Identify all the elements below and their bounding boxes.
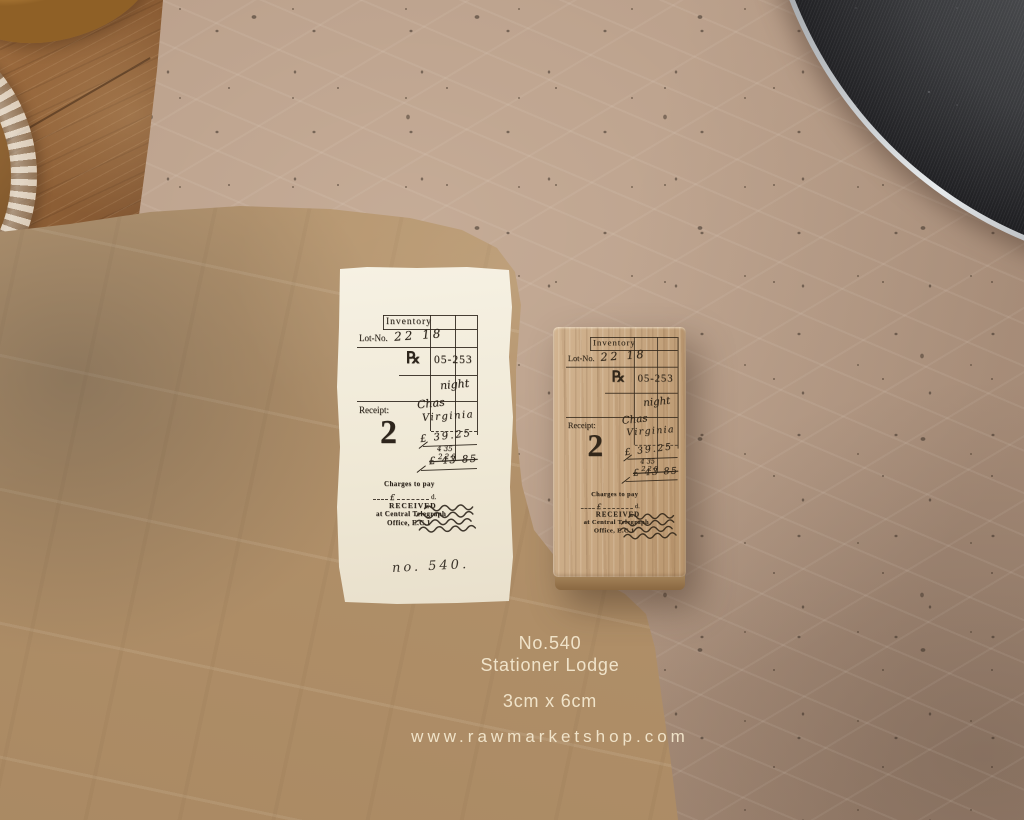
lot-no-label: Lot-No.: [568, 355, 595, 363]
rx-symbol: ℞: [406, 350, 420, 366]
inventory-label: Inventory: [593, 340, 636, 349]
stamped-receipt-paper: Inventory Lot-No. 22 18 ℞ 05-253 night R…: [337, 267, 513, 604]
code-value: 05-253: [434, 355, 473, 367]
sum-line-1: £ 39.25: [624, 443, 673, 458]
grid-line-row3: [605, 393, 678, 394]
telegraph-receipt-stamp-design: Inventory Lot-No. 22 18 ℞ 05-253 night R…: [357, 315, 507, 537]
charges-label: Charges to pay: [591, 491, 638, 498]
caption-spacer: [411, 676, 689, 690]
sum-total: £ 43 85: [429, 455, 478, 468]
charges-pence: d.: [431, 494, 436, 501]
inventory-label: Inventory: [386, 318, 432, 328]
lot-no-value: 22 18: [394, 327, 444, 342]
charges-dash-1: [373, 499, 388, 500]
handwritten-product-number: no. 540.: [392, 557, 470, 576]
rx-symbol: ℞: [612, 370, 625, 385]
sum-line-1: £ 39.25: [420, 429, 473, 445]
big-number: 2: [380, 416, 397, 450]
grid-line-inventory-left: [383, 315, 384, 330]
lot-no-label: Lot-No.: [359, 334, 388, 343]
product-photo-scene: Inventory Lot-No. 22 18 ℞ 05-253 night R…: [0, 0, 1024, 820]
sum-line-2: 4 35: [437, 446, 453, 453]
charges-label: Charges to pay: [384, 481, 435, 488]
charges-dash-1: [581, 508, 595, 509]
stamp-block-top-face: Inventory Lot-No. 22 18 ℞ 05-253 night R…: [553, 327, 686, 577]
product-caption: No.540 Stationer Lodge 3cm x 6cm www.raw…: [411, 632, 689, 748]
receipt-script-line2: Virginia: [626, 426, 675, 439]
wave-cancellation-lines: [412, 503, 477, 535]
sum-rule-2: [626, 479, 678, 482]
charges-dash-2: [603, 508, 633, 509]
code-value: 05-253: [638, 374, 674, 385]
grid-line-row3: [399, 375, 477, 376]
sum-rule-2: [421, 468, 477, 471]
sum-total: £ 43 85: [633, 467, 679, 479]
lot-no-value: 22 18: [600, 348, 647, 362]
big-number: 2: [587, 431, 603, 463]
grid-line-right-border: [477, 315, 478, 435]
grid-line-inventory-left: [590, 337, 591, 351]
product-size: 3cm x 6cm: [411, 690, 689, 712]
product-name: Stationer Lodge: [411, 654, 689, 676]
wave-cancellation-lines: [618, 512, 678, 542]
caption-spacer: [411, 712, 689, 726]
receipt-script-line2: Virginia: [422, 410, 475, 424]
product-number: No.540: [411, 632, 689, 654]
wooden-rubber-stamp-block: Inventory Lot-No. 22 18 ℞ 05-253 night R…: [553, 327, 686, 590]
night-script: night: [440, 378, 470, 391]
telegraph-receipt-stamp-design: Inventory Lot-No. 22 18 ℞ 05-253 night R…: [566, 337, 706, 543]
receipt-script-line1: Chas: [621, 413, 648, 426]
night-script: night: [643, 395, 671, 408]
grid-line-right-border: [678, 337, 679, 449]
receipt-script-line1: Chas: [417, 397, 446, 411]
website-url: www.rawmarketshop.com: [411, 726, 689, 748]
charges-dash-2: [397, 499, 429, 500]
